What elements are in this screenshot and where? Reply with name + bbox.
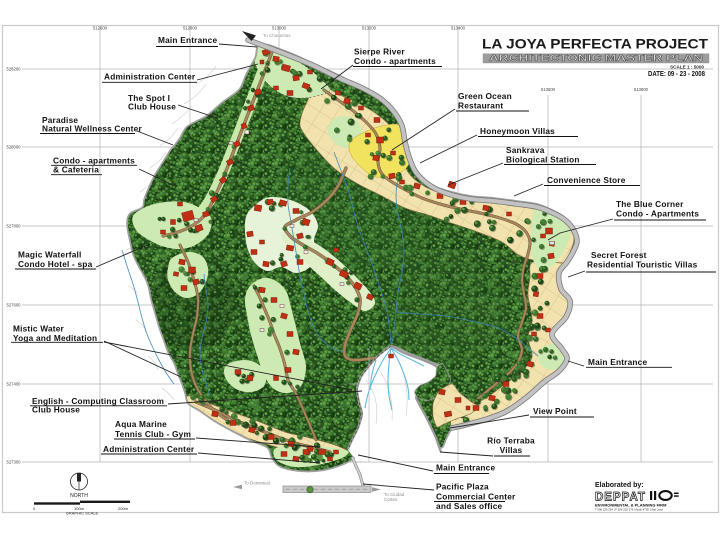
svg-text:513400: 513400: [451, 26, 466, 31]
svg-text:Condo - apartments: Condo - apartments: [354, 56, 436, 66]
svg-text:Convenience Store: Convenience Store: [547, 175, 626, 185]
svg-text:NORTH: NORTH: [70, 493, 88, 499]
svg-text:512600: 512600: [93, 26, 108, 31]
svg-text:Elaborated by:: Elaborated by:: [595, 482, 644, 489]
svg-text:Tennis Club - Gym: Tennis Club - Gym: [115, 429, 191, 439]
svg-text:528000: 528000: [7, 145, 22, 150]
svg-text:Pacific Plaza: Pacific Plaza: [436, 482, 489, 492]
svg-text:and Sales office: and Sales office: [436, 501, 503, 511]
svg-text:Commercial Center: Commercial Center: [436, 491, 516, 501]
svg-text:527800: 527800: [7, 224, 22, 229]
svg-text:513000: 513000: [272, 26, 287, 31]
svg-text:View Point: View Point: [533, 406, 577, 416]
svg-text:513600: 513600: [541, 87, 556, 92]
svg-text:To Dominical: To Dominical: [244, 481, 270, 486]
svg-text:Residential Touristic Villas: Residential Touristic Villas: [587, 259, 698, 269]
svg-text:527400: 527400: [7, 382, 22, 387]
svg-text:528200: 528200: [7, 67, 22, 72]
svg-text:Villas: Villas: [500, 445, 523, 455]
svg-text:Aqua Marine: Aqua Marine: [115, 419, 167, 429]
svg-text:ARCHITECTONIC MASTER PLAN: ARCHITECTONIC MASTER PLAN: [489, 53, 703, 63]
svg-text:Administration Center: Administration Center: [103, 444, 195, 454]
svg-text:& Cafeteria: & Cafeteria: [53, 165, 99, 175]
svg-text:T 506 225 254 | F 506 225 37: T 506 225 254 | F 506 225 376 | Apdo 475…: [595, 508, 663, 512]
svg-text:Main Entrance: Main Entrance: [158, 35, 217, 45]
svg-text:Main Entrance: Main Entrance: [588, 357, 647, 367]
svg-text:Club House: Club House: [128, 102, 176, 112]
svg-text:To Chacaritas: To Chacaritas: [263, 33, 291, 38]
svg-text:Biological Station: Biological Station: [506, 154, 580, 164]
svg-text:DATE: 09 - 23 - 2008: DATE: 09 - 23 - 2008: [648, 71, 705, 78]
svg-text:Main Entrance: Main Entrance: [436, 463, 495, 473]
svg-text:513800: 513800: [634, 87, 649, 92]
svg-text:527600: 527600: [7, 303, 22, 308]
svg-text:Cortes: Cortes: [384, 497, 398, 502]
svg-text:LA JOYA PERFECTA PROJECT: LA JOYA PERFECTA PROJECT: [482, 36, 709, 51]
svg-text:Yoga and Meditation: Yoga and Meditation: [13, 333, 97, 343]
svg-text:Condo Hotel - spa: Condo Hotel - spa: [18, 259, 93, 269]
svg-text:Restaurant: Restaurant: [458, 100, 503, 110]
svg-text:512800: 512800: [183, 26, 198, 31]
svg-text:200m: 200m: [118, 506, 129, 511]
svg-text:527300: 527300: [7, 460, 22, 465]
svg-text:513200: 513200: [362, 26, 377, 31]
svg-text:SCALE 1 : 5000: SCALE 1 : 5000: [670, 65, 705, 70]
svg-text:Condo - Apartments: Condo - Apartments: [616, 208, 699, 218]
svg-text:Natural Wellness Center: Natural Wellness Center: [42, 124, 142, 134]
svg-text:Honeymoon Villas: Honeymoon Villas: [480, 126, 555, 136]
svg-text:Administration Center: Administration Center: [104, 72, 196, 82]
svg-text:GRAPHIC SCALE: GRAPHIC SCALE: [66, 511, 99, 516]
